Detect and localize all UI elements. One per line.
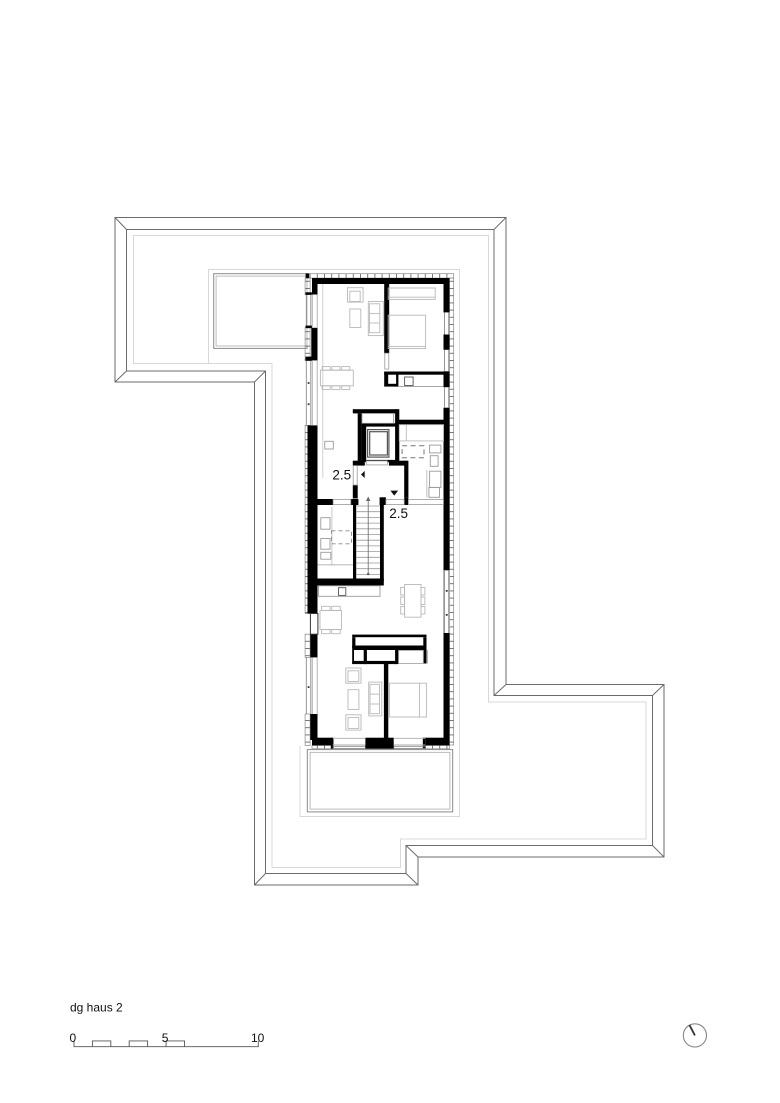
svg-text:2.5: 2.5: [332, 467, 351, 482]
svg-text:2.5: 2.5: [389, 506, 408, 521]
svg-text:10: 10: [251, 1031, 265, 1045]
svg-text:5: 5: [162, 1031, 169, 1045]
svg-text:0: 0: [70, 1031, 77, 1045]
svg-text:dg haus 2: dg haus 2: [70, 1001, 123, 1015]
